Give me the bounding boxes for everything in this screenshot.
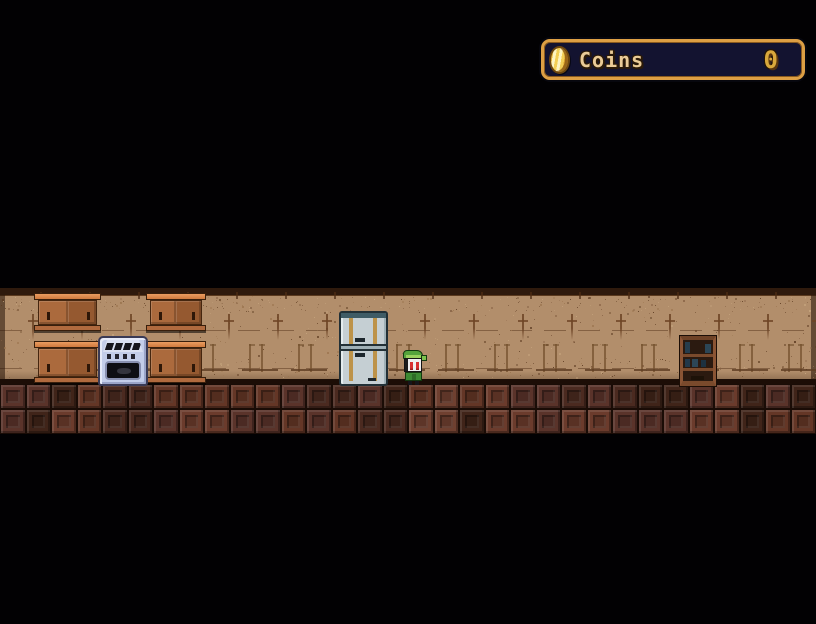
wall-texture-mark xyxy=(481,305,482,306)
wall-texture-mark xyxy=(456,309,457,310)
wall-texture-mark xyxy=(720,369,721,370)
cabinet-base xyxy=(34,377,101,383)
wall-texture-mark xyxy=(677,292,679,299)
wall-texture-mark xyxy=(352,297,353,298)
wall-texture-mark xyxy=(29,339,30,340)
cabinet-door xyxy=(68,301,97,324)
cabinet-trim xyxy=(34,293,101,300)
wall-texture-mark xyxy=(669,314,671,340)
wall-texture-mark xyxy=(220,301,221,302)
wall-texture-mark xyxy=(13,361,14,362)
wall-texture-mark xyxy=(717,366,718,367)
wall-texture-mark xyxy=(487,369,523,371)
wall-texture-mark xyxy=(519,351,520,352)
wall-texture-mark xyxy=(439,307,440,308)
wall-texture-mark xyxy=(792,312,793,313)
wall-texture-mark xyxy=(413,297,414,298)
wall-texture-mark xyxy=(326,314,328,340)
wall-texture-mark xyxy=(304,371,305,372)
wall-texture-mark xyxy=(258,303,259,304)
wall-texture-mark xyxy=(317,307,318,308)
wall-texture-mark xyxy=(539,306,540,307)
wall-texture-mark xyxy=(485,356,486,357)
wall-texture-mark xyxy=(579,361,580,362)
coins-label: Coins xyxy=(579,48,644,72)
wall-texture-mark xyxy=(508,340,509,341)
wall-texture-mark xyxy=(668,306,669,307)
wall-texture-mark xyxy=(458,338,459,339)
burner-slot xyxy=(114,343,123,350)
wall-texture-mark xyxy=(224,320,234,322)
wall-texture-mark xyxy=(791,297,792,298)
wall-texture-mark xyxy=(543,344,549,346)
wall-texture-mark xyxy=(489,348,491,350)
wall-texture-mark xyxy=(740,309,741,310)
book xyxy=(692,359,698,367)
wall-texture-mark xyxy=(242,306,244,308)
wall-texture-mark xyxy=(110,302,111,303)
wall-texture-mark xyxy=(491,307,493,309)
floor-tile xyxy=(638,384,664,409)
oven-window xyxy=(105,361,141,380)
wall-texture-mark xyxy=(645,308,646,309)
wall-texture-mark xyxy=(784,344,786,346)
floor-tile xyxy=(663,409,689,434)
wall-texture-mark xyxy=(812,320,816,322)
wall-texture-mark xyxy=(807,302,808,303)
wall-texture-mark xyxy=(805,373,806,374)
wall-texture-mark xyxy=(504,363,505,364)
wall-texture-mark xyxy=(327,376,328,377)
wall-texture-mark xyxy=(20,331,22,333)
wall-texture-mark xyxy=(616,320,626,322)
fridge-handle xyxy=(355,353,365,357)
wall-texture-mark xyxy=(810,299,811,300)
wall-texture-mark xyxy=(743,373,744,374)
wall-texture-mark xyxy=(220,363,222,365)
wall-texture-mark xyxy=(660,299,661,300)
wall-texture-mark xyxy=(233,302,234,303)
wall-texture-mark xyxy=(599,329,600,330)
wall-texture-mark xyxy=(710,305,712,307)
floor-tile xyxy=(485,384,511,409)
wall-texture-mark xyxy=(667,336,668,337)
floor-tile xyxy=(102,384,128,409)
wall-texture-mark xyxy=(222,303,223,304)
wall-texture-mark xyxy=(299,336,301,338)
wall-texture-mark xyxy=(468,376,469,377)
burner-slot xyxy=(123,343,132,350)
wall-texture-mark xyxy=(609,312,611,314)
floor-tile xyxy=(561,409,587,434)
wall-texture-mark xyxy=(601,309,602,310)
wall-texture-mark xyxy=(754,309,755,310)
floor-tile xyxy=(128,409,154,434)
wall-texture-mark xyxy=(123,301,124,302)
wall-texture-mark xyxy=(332,337,333,338)
wall-texture-mark xyxy=(20,304,21,305)
wall-texture-mark xyxy=(84,331,86,333)
floor-tile xyxy=(383,384,409,409)
wall-texture-mark xyxy=(562,301,563,302)
cabinet-handle xyxy=(47,312,50,320)
wall-texture-mark xyxy=(210,313,211,314)
wall-texture-mark xyxy=(325,303,326,304)
wall-texture-mark xyxy=(317,330,318,331)
wall-texture-mark xyxy=(758,361,760,363)
wall-texture-mark xyxy=(507,297,508,298)
wall-texture-mark xyxy=(447,363,448,364)
wall-texture-mark xyxy=(785,312,786,313)
wall-texture-mark xyxy=(742,301,743,302)
wall-texture-mark xyxy=(633,309,635,311)
wall-texture-mark xyxy=(760,306,762,308)
floor-tile xyxy=(791,384,816,409)
wall-texture-mark xyxy=(533,363,534,364)
wall-texture-mark xyxy=(29,301,30,302)
wall-texture-mark xyxy=(435,344,436,345)
wall-texture-mark xyxy=(740,301,741,302)
wall-texture-mark xyxy=(574,365,576,367)
wall-texture-mark xyxy=(803,333,804,334)
wall-texture-mark xyxy=(618,299,619,300)
wall-texture-mark xyxy=(476,371,477,372)
wall-texture-mark xyxy=(116,305,118,307)
floor-tile xyxy=(434,384,460,409)
wall-texture-mark xyxy=(516,364,518,366)
wall-texture-mark xyxy=(236,362,237,363)
wall-texture-mark xyxy=(530,327,532,329)
wall-texture-mark xyxy=(658,302,659,303)
wall-texture-mark xyxy=(269,302,270,303)
wall-texture-mark xyxy=(210,307,212,309)
wall-texture-mark xyxy=(324,373,325,374)
wall-texture-mark xyxy=(504,348,505,349)
wall-texture-mark xyxy=(781,369,816,371)
wall-texture-mark xyxy=(249,344,255,346)
wall-texture-mark xyxy=(217,338,218,339)
wall-texture-mark xyxy=(134,300,135,301)
floor-tile xyxy=(383,409,409,434)
floor-tile xyxy=(765,384,791,409)
wall-texture-mark xyxy=(758,307,759,308)
wall-texture-mark xyxy=(272,304,274,306)
wall-texture-mark xyxy=(739,344,741,372)
wall-texture-mark xyxy=(528,354,530,356)
wall-texture-mark xyxy=(308,328,309,329)
wall-texture-mark xyxy=(639,306,641,308)
wall-texture-mark xyxy=(465,304,466,305)
floor-tile xyxy=(306,384,332,409)
floor-tile xyxy=(536,384,562,409)
floor-tile xyxy=(153,409,179,434)
wall-texture-mark xyxy=(18,305,20,307)
wall-texture-mark xyxy=(381,307,382,308)
wall-texture-mark xyxy=(717,371,718,372)
wall-texture-mark xyxy=(659,310,660,311)
wall-texture-mark xyxy=(785,303,786,304)
wall-texture-mark xyxy=(409,301,410,302)
wall-cabinet-lower-right xyxy=(146,341,206,383)
wall-texture-mark xyxy=(543,375,544,376)
wall-texture-mark xyxy=(327,352,329,354)
wall-texture-mark xyxy=(16,304,17,305)
wall-texture-mark xyxy=(534,319,535,320)
fridge-vent xyxy=(368,378,376,381)
wall-texture-mark xyxy=(458,300,460,302)
wall-texture-mark xyxy=(511,330,512,331)
wall-texture-mark xyxy=(204,331,205,332)
wall-texture-mark xyxy=(742,376,743,377)
cabinet-handle xyxy=(159,312,162,320)
wall-texture-mark xyxy=(334,292,336,299)
wall-texture-mark xyxy=(385,303,386,304)
floor-tile xyxy=(485,409,511,434)
wall-texture-mark xyxy=(759,371,760,372)
wall-texture-mark xyxy=(419,312,420,313)
wall-texture-mark xyxy=(296,302,297,303)
wall-texture-mark xyxy=(810,347,812,349)
wall-texture-mark xyxy=(605,299,606,300)
wall-texture-mark xyxy=(519,301,520,302)
wall-texture-mark xyxy=(242,369,278,371)
wall-texture-mark xyxy=(530,365,531,366)
wall-texture-mark xyxy=(23,352,24,353)
wall-texture-mark xyxy=(732,335,733,336)
wall-texture-mark xyxy=(4,347,6,349)
wall-texture-mark xyxy=(731,359,732,360)
floor-tile xyxy=(51,409,77,434)
wall-texture-mark xyxy=(570,299,571,300)
wall-texture-mark xyxy=(775,292,777,299)
wall-texture-mark xyxy=(500,299,501,300)
wall-texture-mark xyxy=(273,320,283,322)
wall-texture-mark xyxy=(518,320,528,322)
wall-texture-mark xyxy=(748,360,749,361)
wall-texture-mark xyxy=(629,361,630,362)
wall-texture-mark xyxy=(759,302,760,303)
wall-texture-mark xyxy=(104,306,105,307)
wall-texture-mark xyxy=(288,376,289,377)
floor-tile xyxy=(357,384,383,409)
stove-knobs xyxy=(107,354,135,359)
wall-seam-line xyxy=(0,330,816,331)
wall-texture-mark xyxy=(217,307,218,308)
wall-texture-mark xyxy=(210,344,216,346)
wall-texture-mark xyxy=(662,359,663,360)
wall-texture-mark xyxy=(714,320,724,322)
wall-texture-mark xyxy=(291,351,292,352)
cabinet-door xyxy=(151,301,176,324)
wall-texture-mark xyxy=(807,325,809,327)
wall-texture-mark xyxy=(219,299,221,301)
wall-texture-mark xyxy=(453,310,454,311)
floor-tile xyxy=(306,409,332,434)
wall-texture-mark xyxy=(800,344,802,372)
wall-texture-mark xyxy=(227,364,229,366)
wall-texture-mark xyxy=(614,375,615,376)
wall-texture-mark xyxy=(328,336,329,337)
wall-texture-mark xyxy=(581,363,582,364)
wall-cabinet-upper-left xyxy=(34,293,101,331)
wall-texture-mark xyxy=(330,372,331,373)
wall-texture-mark xyxy=(223,308,224,309)
cabinet-door xyxy=(68,349,97,376)
wall-texture-mark xyxy=(592,325,594,327)
wall-texture-mark xyxy=(639,372,640,373)
wall-texture-mark xyxy=(713,330,714,331)
wall-texture-mark xyxy=(515,311,516,312)
wall-texture-mark xyxy=(582,365,583,366)
wall-texture-mark xyxy=(760,298,761,299)
wall-texture-mark xyxy=(543,344,545,372)
wall-texture-mark xyxy=(424,314,426,340)
wall-texture-mark xyxy=(788,344,794,346)
wall-texture-mark xyxy=(555,315,557,317)
wall-texture-mark xyxy=(16,302,17,303)
wall-texture-mark xyxy=(660,359,661,360)
wall-texture-mark xyxy=(627,363,628,364)
wall-texture-mark xyxy=(305,310,306,311)
wall-texture-mark xyxy=(676,321,677,322)
wall-texture-mark xyxy=(526,362,527,363)
floor-tile xyxy=(740,409,766,434)
wall-texture-mark xyxy=(215,359,216,360)
floor-tile xyxy=(357,409,383,434)
wall-texture-mark xyxy=(508,305,509,306)
wall-texture-mark xyxy=(551,302,552,303)
oven-reflection xyxy=(117,368,131,375)
stove-knob xyxy=(107,354,111,359)
wall-texture-mark xyxy=(797,363,798,364)
wall-texture-mark xyxy=(602,373,603,374)
wall-texture-mark xyxy=(626,333,627,334)
wall-texture-mark xyxy=(764,304,765,305)
wall-texture-mark xyxy=(182,337,183,338)
wall-texture-mark xyxy=(567,302,569,304)
wall-texture-mark xyxy=(361,306,362,307)
stove-burners xyxy=(103,340,143,352)
floor-tile xyxy=(0,384,26,409)
wall-texture-mark xyxy=(430,353,431,354)
wall-texture-mark xyxy=(1,305,2,306)
wall-texture-mark xyxy=(626,305,627,306)
cabinet-handle xyxy=(192,364,195,372)
player-character xyxy=(401,350,426,385)
wall-texture-mark xyxy=(236,292,238,299)
wall-texture-mark xyxy=(330,312,331,313)
wall-texture-mark xyxy=(228,312,229,313)
wall-texture-mark xyxy=(563,361,564,362)
wall-texture-mark xyxy=(744,367,745,368)
floor-tile xyxy=(332,409,358,434)
wall-texture-mark xyxy=(620,314,622,340)
wall-texture-mark xyxy=(585,369,621,371)
wall-texture-mark xyxy=(507,375,508,376)
wall-texture-mark xyxy=(396,344,402,346)
wall-texture-mark xyxy=(650,317,652,319)
wall-texture-mark xyxy=(645,321,646,322)
wall-texture-mark xyxy=(273,353,274,354)
wall-texture-mark xyxy=(506,344,508,372)
floor-tile xyxy=(51,384,77,409)
wall-texture-mark xyxy=(280,298,281,299)
floor-tile xyxy=(459,384,485,409)
wall-texture-mark xyxy=(734,307,735,308)
wall-texture-mark xyxy=(568,373,569,374)
wall-texture-mark xyxy=(589,297,591,299)
wall-texture-mark xyxy=(547,363,548,364)
wall-texture-mark xyxy=(551,335,552,336)
wall-texture-mark xyxy=(747,342,748,343)
wall-texture-mark xyxy=(520,340,522,342)
wall-texture-mark xyxy=(206,306,207,307)
wall-texture-mark xyxy=(106,309,107,310)
floor-tile xyxy=(0,409,26,434)
wall-texture-mark xyxy=(450,310,452,312)
wall-texture-mark xyxy=(497,364,498,365)
wall-texture-mark xyxy=(590,305,591,306)
wall-texture-mark xyxy=(796,309,797,310)
wall-texture-mark xyxy=(246,311,247,312)
floor-tile xyxy=(179,384,205,409)
wall-texture-mark xyxy=(530,292,532,299)
game-viewport[interactable]: Coins 0 xyxy=(0,0,816,624)
wall-texture-mark xyxy=(7,371,8,372)
wall-texture-mark xyxy=(506,320,507,321)
floor-tile xyxy=(153,384,179,409)
wall-texture-mark xyxy=(119,308,120,309)
wall-texture-mark xyxy=(766,351,767,352)
floor-tile xyxy=(561,384,587,409)
wall-texture-mark xyxy=(402,324,403,325)
wall-texture-mark xyxy=(303,338,304,339)
wall-texture-mark xyxy=(655,324,656,325)
wall-texture-mark xyxy=(20,302,21,303)
wall-texture-mark xyxy=(792,301,793,302)
wall-texture-mark xyxy=(240,326,241,327)
wall-texture-mark xyxy=(15,297,16,298)
wall-texture-mark xyxy=(317,323,318,324)
wall-texture-mark xyxy=(665,320,675,322)
wall-texture-mark xyxy=(463,377,464,378)
wall-texture-mark xyxy=(751,344,753,372)
shelf-board xyxy=(683,354,713,357)
wall-texture-mark xyxy=(734,302,735,303)
wall-texture-mark xyxy=(649,313,650,314)
wall-texture-mark xyxy=(259,344,265,346)
floor-tile xyxy=(434,409,460,434)
wall-texture-mark xyxy=(213,327,214,328)
wall-texture-mark xyxy=(653,299,654,300)
wall-texture-mark xyxy=(728,318,729,319)
wall-texture-mark xyxy=(403,308,404,309)
wall-texture-mark xyxy=(491,346,492,347)
stove-knob xyxy=(123,354,127,359)
wall-texture-mark xyxy=(747,306,748,307)
wall-texture-mark xyxy=(526,310,527,311)
wall-texture-mark xyxy=(559,353,561,355)
wall-texture-mark xyxy=(513,315,514,316)
wall-texture-mark xyxy=(12,359,13,360)
wall-texture-mark xyxy=(592,344,594,372)
wall-texture-mark xyxy=(655,305,656,306)
floor-tile xyxy=(102,409,128,434)
wall-texture-mark xyxy=(612,376,613,377)
wall-texture-mark xyxy=(409,303,410,304)
wall-texture-mark xyxy=(126,320,136,322)
wall-texture-mark xyxy=(404,299,405,300)
